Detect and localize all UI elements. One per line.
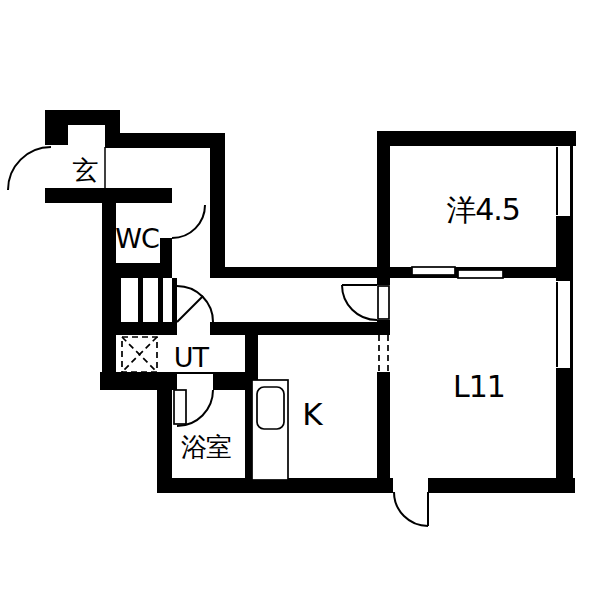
room-label-western-room: 洋4.5 <box>446 192 520 227</box>
entrance-door-opening <box>45 145 57 188</box>
bathroom-door-leaf <box>174 390 186 424</box>
hall-east-wall <box>210 148 225 278</box>
hall-top-wall <box>120 133 225 148</box>
room-label-genkan: 玄 <box>73 155 98 185</box>
corridor-north-wall <box>210 267 390 278</box>
wc-south-wall <box>102 263 172 280</box>
sliding-door-panel-2 <box>458 270 503 278</box>
western-room-window <box>556 146 570 216</box>
sliding-door-panel-1 <box>412 267 455 275</box>
entrance-niche-post <box>105 110 120 148</box>
wc-door-opening <box>160 203 172 238</box>
room-label-bathroom: 浴室 <box>181 432 231 462</box>
room-label-utility: UT <box>174 342 210 373</box>
utility-door-opening <box>177 322 210 335</box>
balcony-door-opening <box>393 478 428 493</box>
living-window <box>556 281 570 368</box>
room-label-kitchen: K <box>302 396 323 432</box>
room-label-wc: WC <box>115 223 159 254</box>
south-outer-wall <box>157 478 575 493</box>
west-outer-wall <box>102 203 116 390</box>
bathroom-door-opening <box>177 374 213 390</box>
storage-slot-1 <box>121 278 138 322</box>
living-door-leaf <box>378 286 389 319</box>
entrance-south-wall <box>45 188 172 203</box>
floorplan-background <box>0 0 600 600</box>
utility-south-wall <box>100 372 245 390</box>
north-outer-wall <box>377 131 576 146</box>
floorplan-page: 玄 WC UT 浴室 K L11 洋4.5 <box>0 0 600 600</box>
storage-slot-2 <box>143 278 158 322</box>
storage-slot-3 <box>163 278 172 322</box>
wc-east-wall <box>160 238 172 263</box>
room-label-living: L11 <box>453 369 505 404</box>
entrance-niche <box>68 125 105 145</box>
bathroom-west-wall <box>157 388 172 485</box>
kitchen-sink <box>257 387 284 429</box>
floorplan-canvas: 玄 WC UT 浴室 K L11 洋4.5 <box>0 0 600 600</box>
corridor-south-wall <box>102 322 390 335</box>
entrance-left-wall <box>45 125 68 145</box>
